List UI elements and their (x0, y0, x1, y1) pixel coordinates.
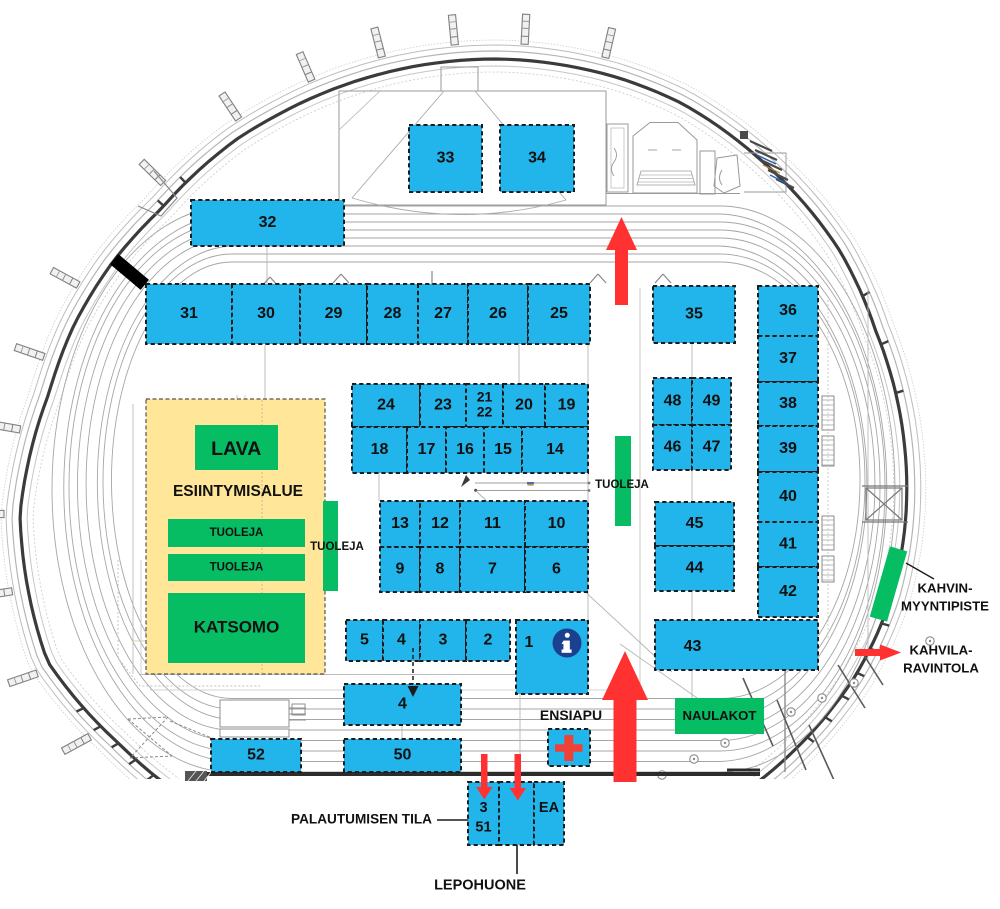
svg-text:25: 25 (550, 305, 568, 322)
svg-text:44: 44 (686, 560, 704, 577)
svg-text:MYYNTIPISTE: MYYNTIPISTE (901, 598, 989, 613)
svg-text:52: 52 (247, 747, 265, 764)
svg-text:34: 34 (528, 150, 546, 167)
svg-text:33: 33 (437, 150, 455, 167)
svg-text:41: 41 (779, 536, 797, 553)
svg-text:10: 10 (548, 515, 566, 532)
svg-text:42: 42 (779, 583, 797, 600)
svg-text:KAHVIN-: KAHVIN- (918, 580, 973, 595)
svg-text:38: 38 (779, 395, 797, 412)
svg-text:TUOLEJA: TUOLEJA (595, 479, 649, 491)
svg-text:37: 37 (779, 350, 797, 367)
svg-text:TUOLEJA: TUOLEJA (210, 527, 264, 539)
svg-text:45: 45 (686, 515, 704, 532)
svg-text:PALAUTUMISEN TILA: PALAUTUMISEN TILA (291, 812, 432, 827)
svg-text:46: 46 (664, 439, 682, 456)
svg-text:21: 21 (477, 389, 493, 405)
svg-text:19: 19 (558, 397, 576, 414)
svg-text:50: 50 (394, 747, 412, 764)
svg-text:7: 7 (488, 561, 497, 578)
svg-text:16: 16 (456, 441, 474, 458)
svg-text:2: 2 (484, 632, 493, 649)
svg-text:12: 12 (431, 515, 449, 532)
svg-text:43: 43 (684, 638, 702, 655)
svg-text:30: 30 (257, 305, 275, 322)
svg-text:24: 24 (377, 397, 395, 414)
svg-text:EA: EA (539, 800, 560, 816)
svg-text:4: 4 (398, 696, 407, 713)
svg-text:20: 20 (515, 397, 533, 414)
svg-text:9: 9 (396, 561, 405, 578)
svg-text:TUOLEJA: TUOLEJA (310, 541, 364, 553)
svg-text:51: 51 (475, 819, 491, 835)
svg-text:ESIINTYMISALUE: ESIINTYMISALUE (173, 483, 303, 500)
svg-text:LEPOHUONE: LEPOHUONE (434, 877, 526, 893)
svg-text:29: 29 (325, 305, 343, 322)
svg-text:28: 28 (384, 305, 402, 322)
svg-text:27: 27 (434, 305, 452, 322)
svg-text:3: 3 (439, 632, 448, 649)
svg-text:ENSIAPU: ENSIAPU (540, 707, 602, 723)
svg-text:5: 5 (360, 632, 369, 649)
svg-text:NAULAKOT: NAULAKOT (683, 708, 757, 723)
svg-text:TUOLEJA: TUOLEJA (210, 562, 264, 574)
svg-text:1: 1 (525, 634, 534, 651)
svg-text:49: 49 (703, 393, 721, 410)
svg-text:RAVINTOLA: RAVINTOLA (903, 660, 979, 675)
svg-text:3: 3 (479, 800, 487, 816)
svg-text:36: 36 (779, 302, 797, 319)
svg-text:KATSOMO: KATSOMO (194, 617, 280, 636)
svg-text:22: 22 (477, 404, 493, 420)
svg-text:35: 35 (685, 306, 703, 323)
svg-text:13: 13 (391, 515, 409, 532)
svg-text:18: 18 (371, 441, 389, 458)
svg-text:LAVA: LAVA (211, 438, 261, 460)
svg-text:17: 17 (418, 441, 436, 458)
svg-text:48: 48 (664, 393, 682, 410)
svg-text:31: 31 (180, 305, 198, 322)
svg-text:26: 26 (489, 305, 507, 322)
svg-text:14: 14 (546, 441, 564, 458)
svg-text:23: 23 (434, 397, 452, 414)
svg-text:40: 40 (779, 488, 797, 505)
svg-text:KAHVILA-: KAHVILA- (909, 642, 972, 657)
svg-text:8: 8 (436, 561, 445, 578)
svg-text:32: 32 (259, 214, 277, 231)
svg-text:11: 11 (484, 515, 501, 532)
svg-text:47: 47 (703, 439, 721, 456)
svg-text:4: 4 (397, 632, 406, 649)
svg-text:15: 15 (494, 441, 512, 458)
svg-text:39: 39 (779, 440, 797, 457)
svg-text:6: 6 (552, 561, 561, 578)
